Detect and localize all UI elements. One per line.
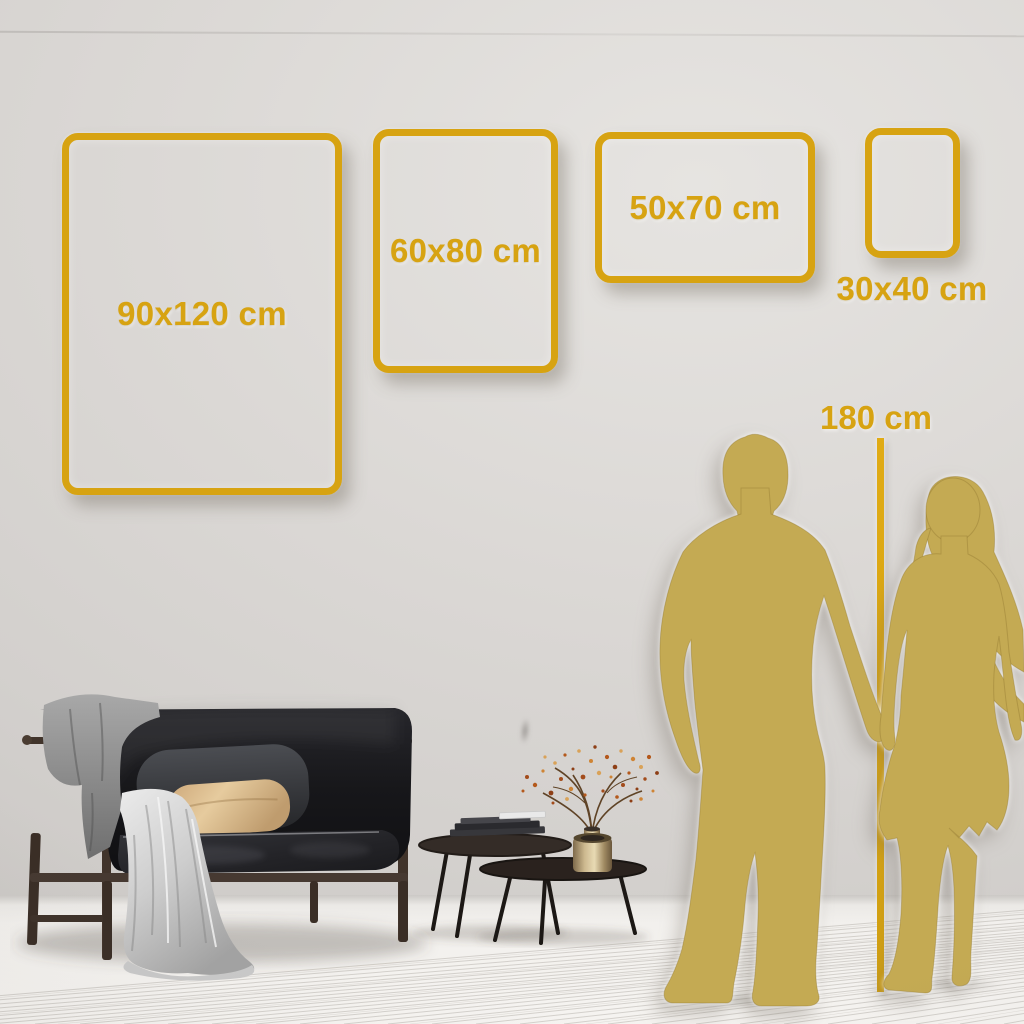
size-frame-30x40	[865, 128, 960, 258]
size-guide-scene: 90x120 cm 60x80 cm 50x70 cm 30x40 cm 180…	[0, 0, 1024, 1024]
size-label-30x40: 30x40 cm	[822, 270, 1002, 308]
woman-silhouette	[879, 476, 1024, 993]
couple-illustration	[637, 432, 1024, 1012]
books-stack	[449, 811, 546, 836]
size-frame-90x120: 90x120 cm	[62, 133, 342, 495]
man-silhouette	[660, 434, 886, 1006]
size-label-60x80: 60x80 cm	[390, 232, 541, 270]
size-label-50x70: 50x70 cm	[629, 189, 780, 227]
large-table	[419, 834, 571, 936]
coffee-tables-illustration	[395, 733, 665, 948]
vase	[573, 827, 612, 873]
size-label-90x120: 90x120 cm	[117, 295, 287, 333]
sofa-illustration	[10, 685, 440, 985]
size-frame-50x70: 50x70 cm	[595, 132, 815, 283]
size-frame-60x80: 60x80 cm	[373, 129, 558, 373]
